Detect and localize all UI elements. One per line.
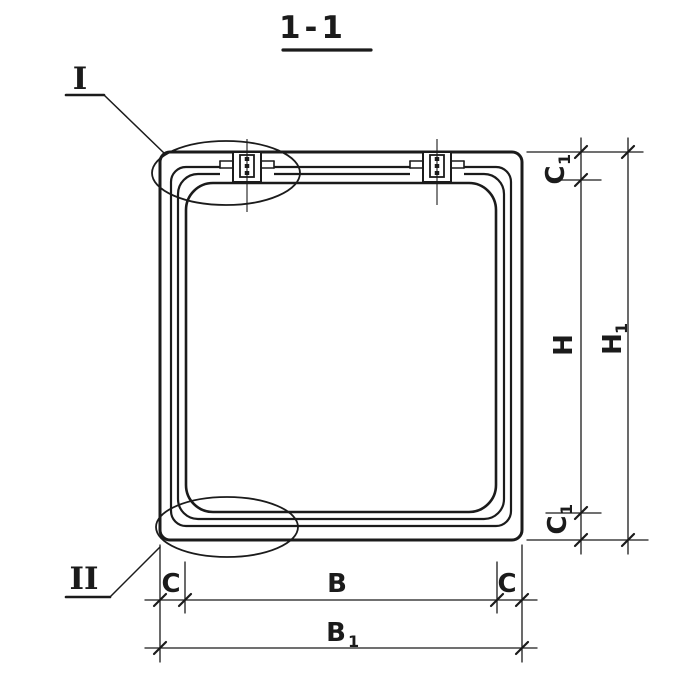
- dim-label-b1-sub: 1: [348, 632, 359, 651]
- dim-label-b1: B 1: [326, 618, 359, 651]
- drawing-canvas: 1-1 I: [0, 0, 700, 700]
- outer-contour: [160, 152, 522, 540]
- dim-label-h-base: H: [549, 334, 579, 356]
- dim-label-c1-bottom-sub: 1: [557, 504, 576, 515]
- insert-left: [220, 139, 274, 212]
- insert-right: [410, 139, 464, 205]
- dim-label-c1-top-sub: 1: [555, 154, 574, 165]
- callout-I-label: I: [73, 61, 88, 97]
- dim-label-c-right: C: [497, 569, 516, 599]
- dim-label-c1-top-base: C: [541, 165, 571, 184]
- dim-label-h1-base: H: [598, 333, 628, 355]
- dim-label-b: B: [327, 569, 347, 599]
- callout-I: I: [66, 61, 164, 153]
- callout-II-label: II: [69, 561, 98, 597]
- dim-label-h1: H 1: [598, 323, 631, 355]
- dim-label-h1-sub: 1: [612, 323, 631, 334]
- box-section: [160, 152, 522, 540]
- callout-II-leader: [110, 547, 160, 597]
- inner-contour: [186, 183, 496, 512]
- section-title: 1-1: [279, 10, 371, 50]
- wall-layer-line-2: [178, 174, 504, 519]
- callout-I-leader: [104, 95, 164, 153]
- wall-layer-line-1: [171, 167, 511, 526]
- dim-label-c1-bottom: C 1: [543, 504, 576, 535]
- section-title-text: 1-1: [279, 10, 347, 46]
- dim-chain-right: C 1 H H 1 C 1: [527, 138, 648, 554]
- dim-label-b1-base: B: [326, 618, 346, 648]
- dim-label-h: H: [549, 334, 579, 356]
- callout-II: II: [66, 547, 160, 597]
- dim-label-c-left: C: [161, 569, 180, 599]
- dim-label-c1-top: C 1: [541, 154, 574, 185]
- dim-chain-bottom: C B C B 1: [145, 545, 537, 662]
- dim-label-c1-bottom-base: C: [543, 515, 573, 534]
